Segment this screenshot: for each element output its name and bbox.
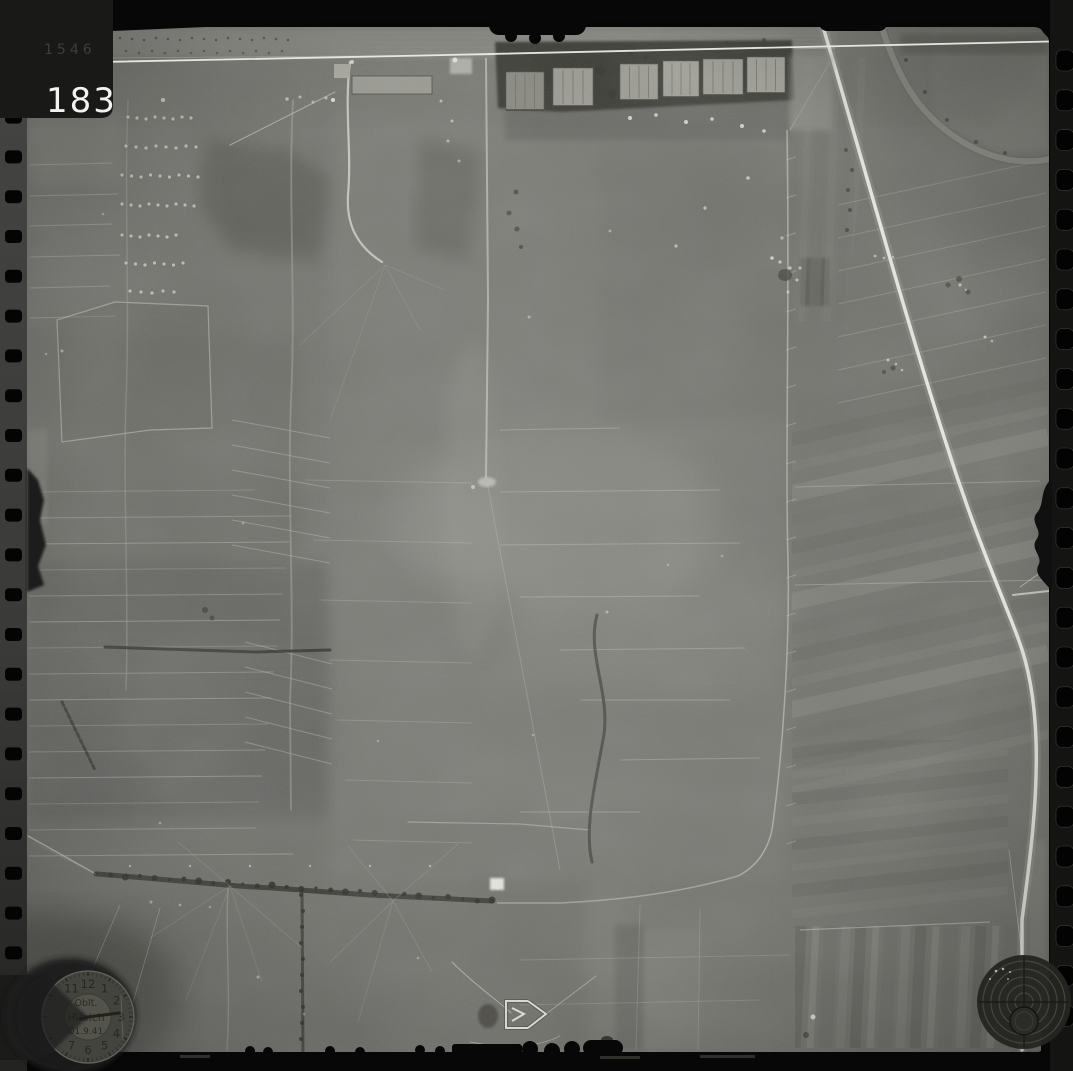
svg-text:7: 7 bbox=[68, 1039, 75, 1053]
svg-text:4: 4 bbox=[113, 1027, 120, 1041]
reticle-offset-circle bbox=[1010, 1007, 1038, 1035]
frame-number-patch: 1546 183 bbox=[0, 0, 117, 121]
film-edge-number: 1546 bbox=[44, 42, 96, 58]
concentric-reticle-stamp bbox=[977, 955, 1071, 1049]
frame-number: 183 bbox=[46, 81, 117, 121]
svg-text:11: 11 bbox=[64, 981, 79, 995]
aerial-reconnaissance-photo: 1546 183 11121234567 Oblt. Hilbich 01.9.… bbox=[0, 0, 1073, 1071]
svg-text:6: 6 bbox=[84, 1043, 91, 1057]
vignette bbox=[27, 27, 1049, 1053]
stamp-rank: Oblt. bbox=[75, 998, 98, 1009]
photograph bbox=[0, 0, 1073, 1071]
svg-text:5: 5 bbox=[101, 1039, 108, 1053]
marker-smudge bbox=[478, 1004, 498, 1028]
film-frame: 1546 183 11121234567 Oblt. Hilbich 01.9.… bbox=[0, 0, 1073, 1071]
svg-text:2: 2 bbox=[113, 994, 120, 1008]
svg-text:1: 1 bbox=[101, 981, 108, 995]
svg-text:12: 12 bbox=[81, 977, 96, 991]
